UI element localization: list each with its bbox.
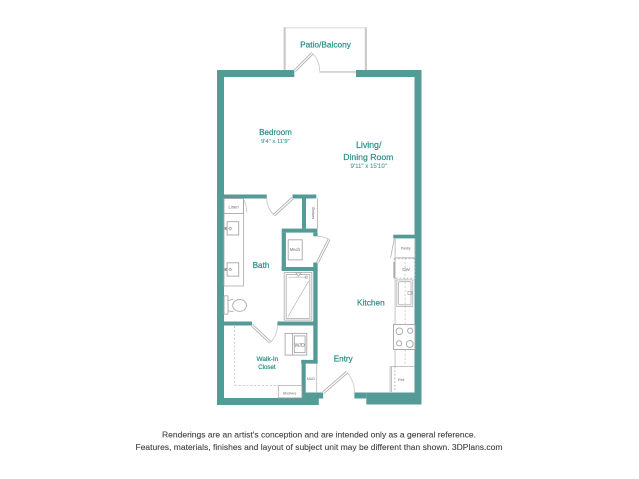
svg-text:Bath: Bath [253, 261, 270, 270]
svg-text:Mech: Mech [290, 247, 301, 252]
svg-text:Shelves: Shelves [283, 392, 297, 396]
svg-text:Pantry: Pantry [401, 247, 411, 251]
svg-text:9'4" x 11'9": 9'4" x 11'9" [261, 139, 290, 145]
svg-text:Linen: Linen [228, 204, 239, 209]
svg-text:Ref.: Ref. [398, 377, 405, 382]
svg-text:Living/: Living/ [356, 140, 382, 150]
svg-text:DW: DW [402, 267, 410, 272]
svg-text:9'11" x 15'10": 9'11" x 15'10" [351, 163, 387, 170]
svg-text:MUD: MUD [307, 377, 316, 381]
svg-text:Walk-In: Walk-In [257, 356, 279, 363]
svg-text:Closet: Closet [258, 364, 276, 371]
svg-text:W/D: W/D [295, 343, 305, 349]
svg-text:Bedroom: Bedroom [259, 128, 292, 137]
svg-text:Dining Room: Dining Room [343, 152, 393, 162]
svg-text:Kitchen: Kitchen [357, 298, 385, 308]
svg-text:Renderings are an artist's con: Renderings are an artist's conception an… [162, 430, 476, 440]
svg-text:Shelves: Shelves [311, 207, 315, 219]
svg-text:Features, materials, finishes: Features, materials, finishes and layout… [136, 442, 503, 452]
svg-text:Patio/Balcony: Patio/Balcony [300, 40, 352, 50]
svg-text:Entry: Entry [334, 354, 354, 363]
